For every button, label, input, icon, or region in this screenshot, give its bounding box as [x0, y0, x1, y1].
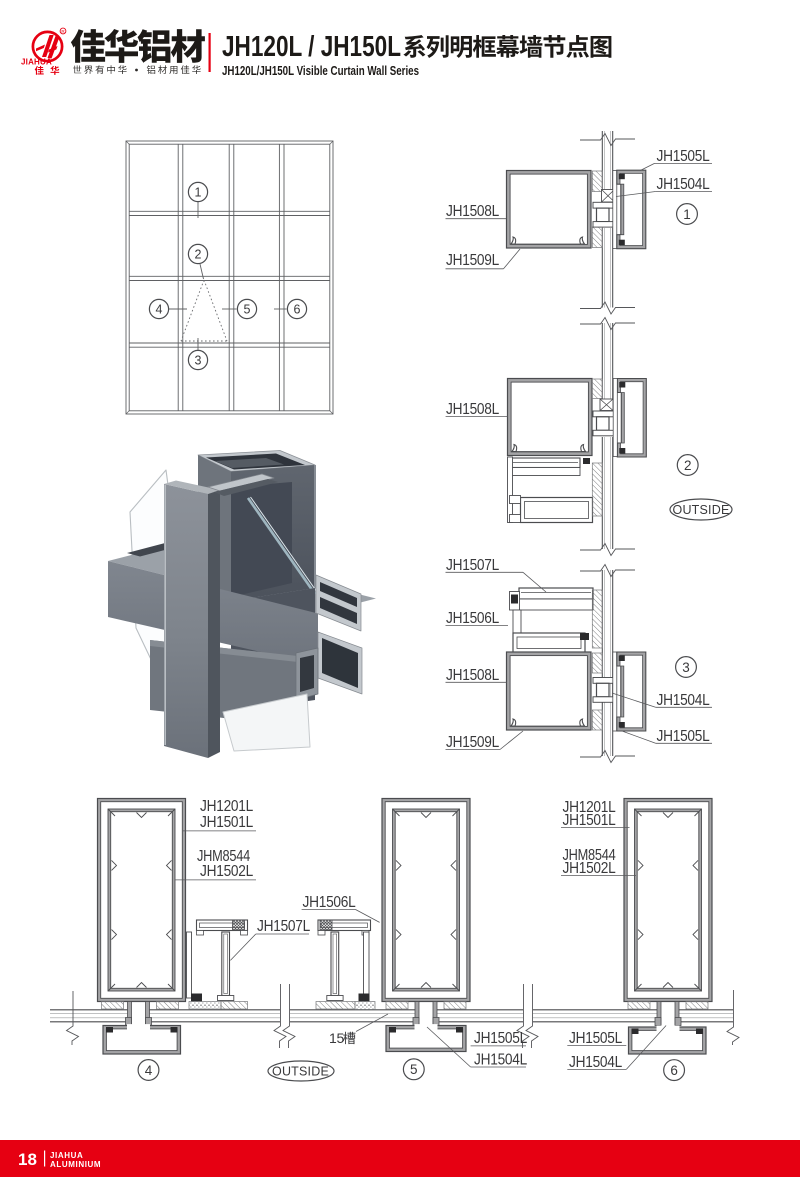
svg-text:OUTSIDE: OUTSIDE [272, 1065, 329, 1079]
svg-text:JH120L/JH150L Visible Curtain: JH120L/JH150L Visible Curtain Wall Serie… [222, 64, 419, 78]
svg-text:1: 1 [195, 185, 202, 199]
svg-text:JH120L / JH150L: JH120L / JH150L [222, 31, 401, 63]
svg-text:JH1508L: JH1508L [446, 667, 499, 684]
svg-text:JH1509L: JH1509L [446, 734, 499, 751]
svg-text:ALUMINIUM: ALUMINIUM [50, 1160, 101, 1169]
svg-text:OUTSIDE: OUTSIDE [673, 503, 730, 517]
svg-text:18: 18 [18, 1150, 37, 1169]
svg-text:3: 3 [682, 660, 690, 675]
svg-text:JH1504L: JH1504L [474, 1052, 527, 1069]
svg-text:JH1506L: JH1506L [446, 610, 499, 627]
svg-text:JH1501L: JH1501L [200, 814, 253, 831]
svg-text:15: 15 [329, 1030, 344, 1046]
svg-text:JH1509L: JH1509L [446, 252, 499, 269]
svg-text:JIAHUA: JIAHUA [21, 58, 52, 67]
svg-text:JH1507L: JH1507L [446, 557, 499, 574]
svg-text:JH1504L: JH1504L [657, 176, 710, 193]
svg-text:5: 5 [410, 1062, 418, 1077]
svg-text:JH1502L: JH1502L [200, 863, 253, 880]
svg-text:JH1508L: JH1508L [446, 203, 499, 220]
svg-text:JH1507L: JH1507L [257, 918, 310, 935]
svg-text:JH1505L: JH1505L [474, 1030, 527, 1047]
svg-text:JH1505L: JH1505L [657, 148, 710, 165]
svg-text:6: 6 [294, 302, 301, 316]
svg-text:5: 5 [244, 302, 251, 316]
svg-text:4: 4 [156, 302, 163, 316]
svg-text:JH1201L: JH1201L [200, 798, 253, 815]
svg-text:6: 6 [670, 1063, 678, 1078]
svg-text:JH1504L: JH1504L [569, 1054, 622, 1071]
svg-text:JH1505L: JH1505L [569, 1030, 622, 1047]
svg-text:JH1506L: JH1506L [303, 894, 356, 911]
svg-text:JH1504L: JH1504L [657, 692, 710, 709]
svg-text:1: 1 [683, 207, 691, 222]
svg-text:2: 2 [684, 458, 692, 473]
svg-text:JH1505L: JH1505L [657, 728, 710, 745]
svg-text:JH1502L: JH1502L [563, 860, 616, 877]
svg-text:3: 3 [195, 353, 202, 367]
svg-text:2: 2 [195, 247, 202, 261]
svg-text:4: 4 [145, 1063, 153, 1078]
svg-text:JH1501L: JH1501L [563, 812, 616, 829]
svg-text:JIAHUA: JIAHUA [50, 1151, 83, 1160]
svg-text:JH1508L: JH1508L [446, 401, 499, 418]
